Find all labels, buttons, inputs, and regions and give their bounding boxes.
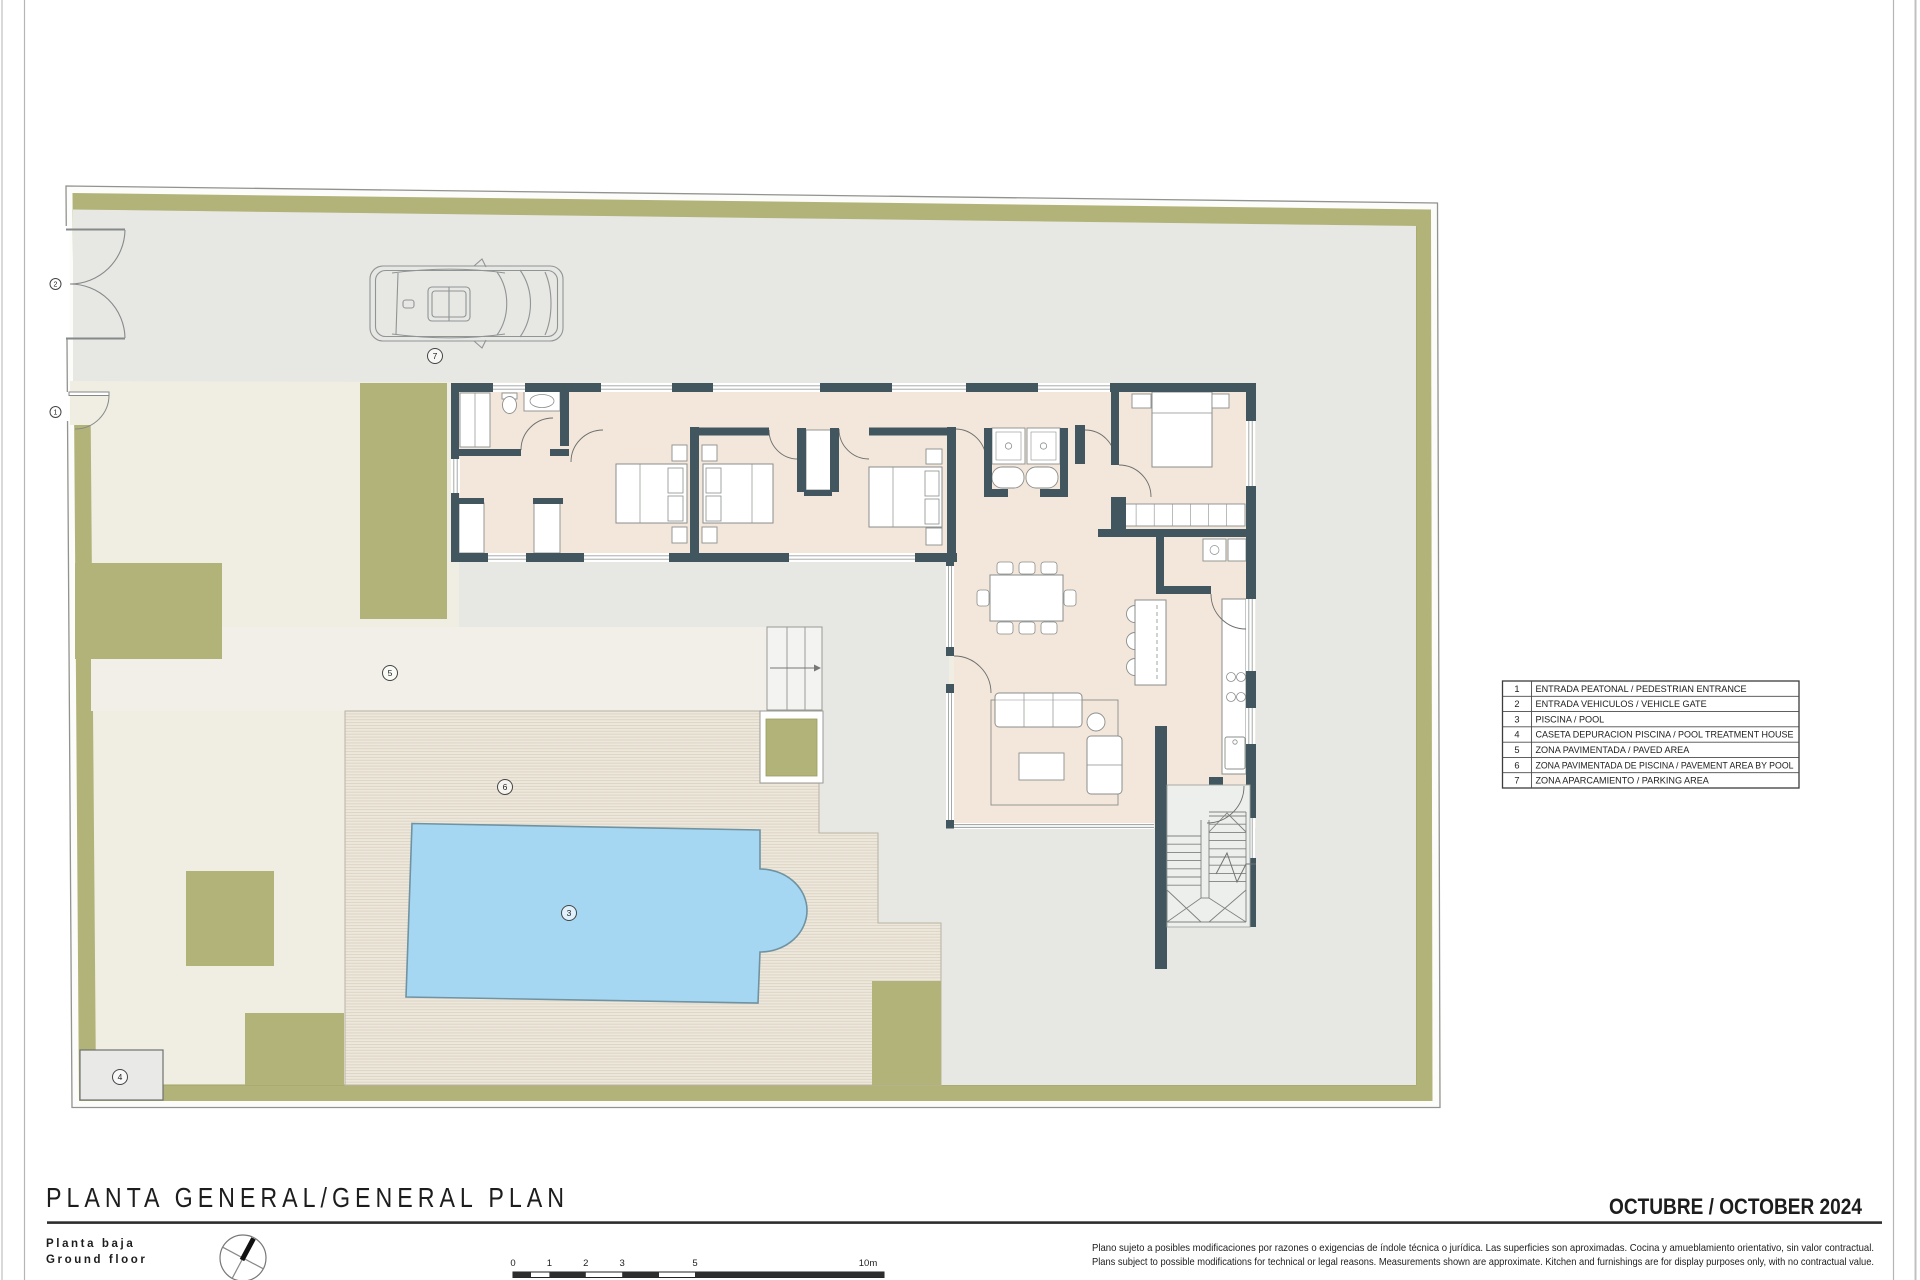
svg-text:3: 3 [567, 908, 572, 918]
svg-text:0: 0 [510, 1258, 515, 1269]
svg-text:PISCINA / POOL: PISCINA / POOL [1536, 714, 1605, 724]
svg-text:2: 2 [1514, 699, 1519, 709]
svg-text:Plano sujeto a posibles modifi: Plano sujeto a posibles modificaciones p… [1092, 1243, 1874, 1254]
svg-text:2: 2 [583, 1258, 588, 1269]
svg-text:7: 7 [1514, 776, 1519, 786]
svg-text:ZONA PAVIMENTADA / PAVED AREA: ZONA PAVIMENTADA / PAVED AREA [1536, 745, 1691, 755]
svg-text:OCTUBRE / OCTOBER 2024: OCTUBRE / OCTOBER 2024 [1609, 1194, 1863, 1219]
svg-text:3: 3 [620, 1258, 625, 1269]
svg-text:ZONA PAVIMENTADA DE PISCINA /: ZONA PAVIMENTADA DE PISCINA / PAVEMENT A… [1536, 760, 1794, 770]
svg-text:5: 5 [692, 1258, 697, 1269]
svg-text:ENTRADA VEHICULOS / VEHICLE GA: ENTRADA VEHICULOS / VEHICLE GATE [1536, 699, 1707, 709]
svg-text:4: 4 [1514, 730, 1519, 740]
svg-text:Planta baja: Planta baja [46, 1238, 135, 1250]
svg-text:5: 5 [388, 668, 393, 678]
svg-text:ZONA APARCAMIENTO / PARKING AR: ZONA APARCAMIENTO / PARKING AREA [1536, 776, 1710, 786]
svg-text:1: 1 [54, 410, 58, 417]
svg-text:CASETA DEPURACION PISCINA / PO: CASETA DEPURACION PISCINA / POOL TREATME… [1536, 730, 1794, 740]
svg-text:7: 7 [433, 351, 438, 361]
svg-text:6: 6 [503, 782, 508, 792]
svg-text:ENTRADA PEATONAL / PEDESTRIAN: ENTRADA PEATONAL / PEDESTRIAN ENTRANCE [1536, 684, 1747, 694]
svg-text:PLANTA GENERAL/GENERAL PLAN: PLANTA GENERAL/GENERAL PLAN [46, 1182, 569, 1213]
svg-text:6: 6 [1514, 760, 1519, 770]
svg-text:4: 4 [118, 1072, 123, 1082]
svg-text:3: 3 [1514, 714, 1519, 724]
svg-text:10m: 10m [859, 1258, 878, 1269]
svg-text:Ground floor: Ground floor [46, 1254, 147, 1266]
svg-text:1: 1 [547, 1258, 552, 1269]
svg-text:Plans subject to possible modi: Plans subject to possible modifications … [1092, 1257, 1874, 1268]
svg-text:1: 1 [1514, 684, 1519, 694]
svg-text:5: 5 [1514, 745, 1519, 755]
svg-text:2: 2 [54, 282, 58, 289]
